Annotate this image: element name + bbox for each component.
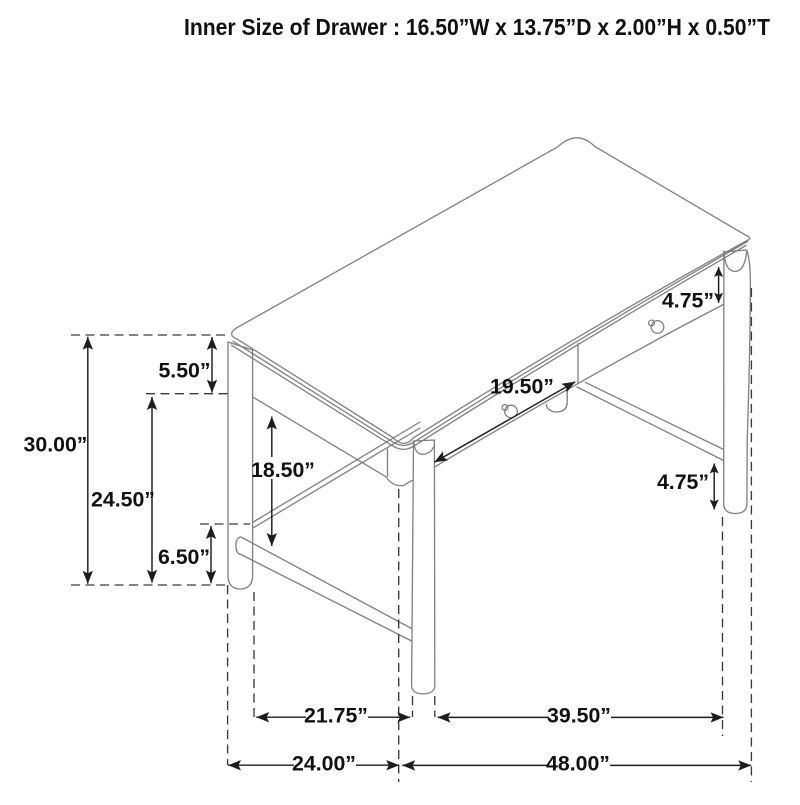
svg-text:39.50”: 39.50” bbox=[547, 704, 611, 728]
svg-text:4.75”: 4.75” bbox=[657, 470, 709, 494]
svg-text:19.50”: 19.50” bbox=[490, 375, 554, 399]
svg-text:6.50”: 6.50” bbox=[158, 545, 210, 569]
svg-text:48.00”: 48.00” bbox=[546, 752, 610, 776]
svg-text:30.00”: 30.00” bbox=[24, 433, 88, 457]
svg-text:Inner Size of Drawer : 16.50”W: Inner Size of Drawer : 16.50”W x 13.75”D… bbox=[184, 14, 771, 40]
svg-text:4.75”: 4.75” bbox=[662, 289, 714, 313]
svg-text:21.75”: 21.75” bbox=[304, 704, 368, 728]
svg-text:18.50”: 18.50” bbox=[251, 458, 315, 482]
svg-text:24.00”: 24.00” bbox=[292, 752, 356, 776]
svg-text:5.50”: 5.50” bbox=[158, 359, 210, 383]
svg-text:24.50”: 24.50” bbox=[91, 488, 155, 512]
